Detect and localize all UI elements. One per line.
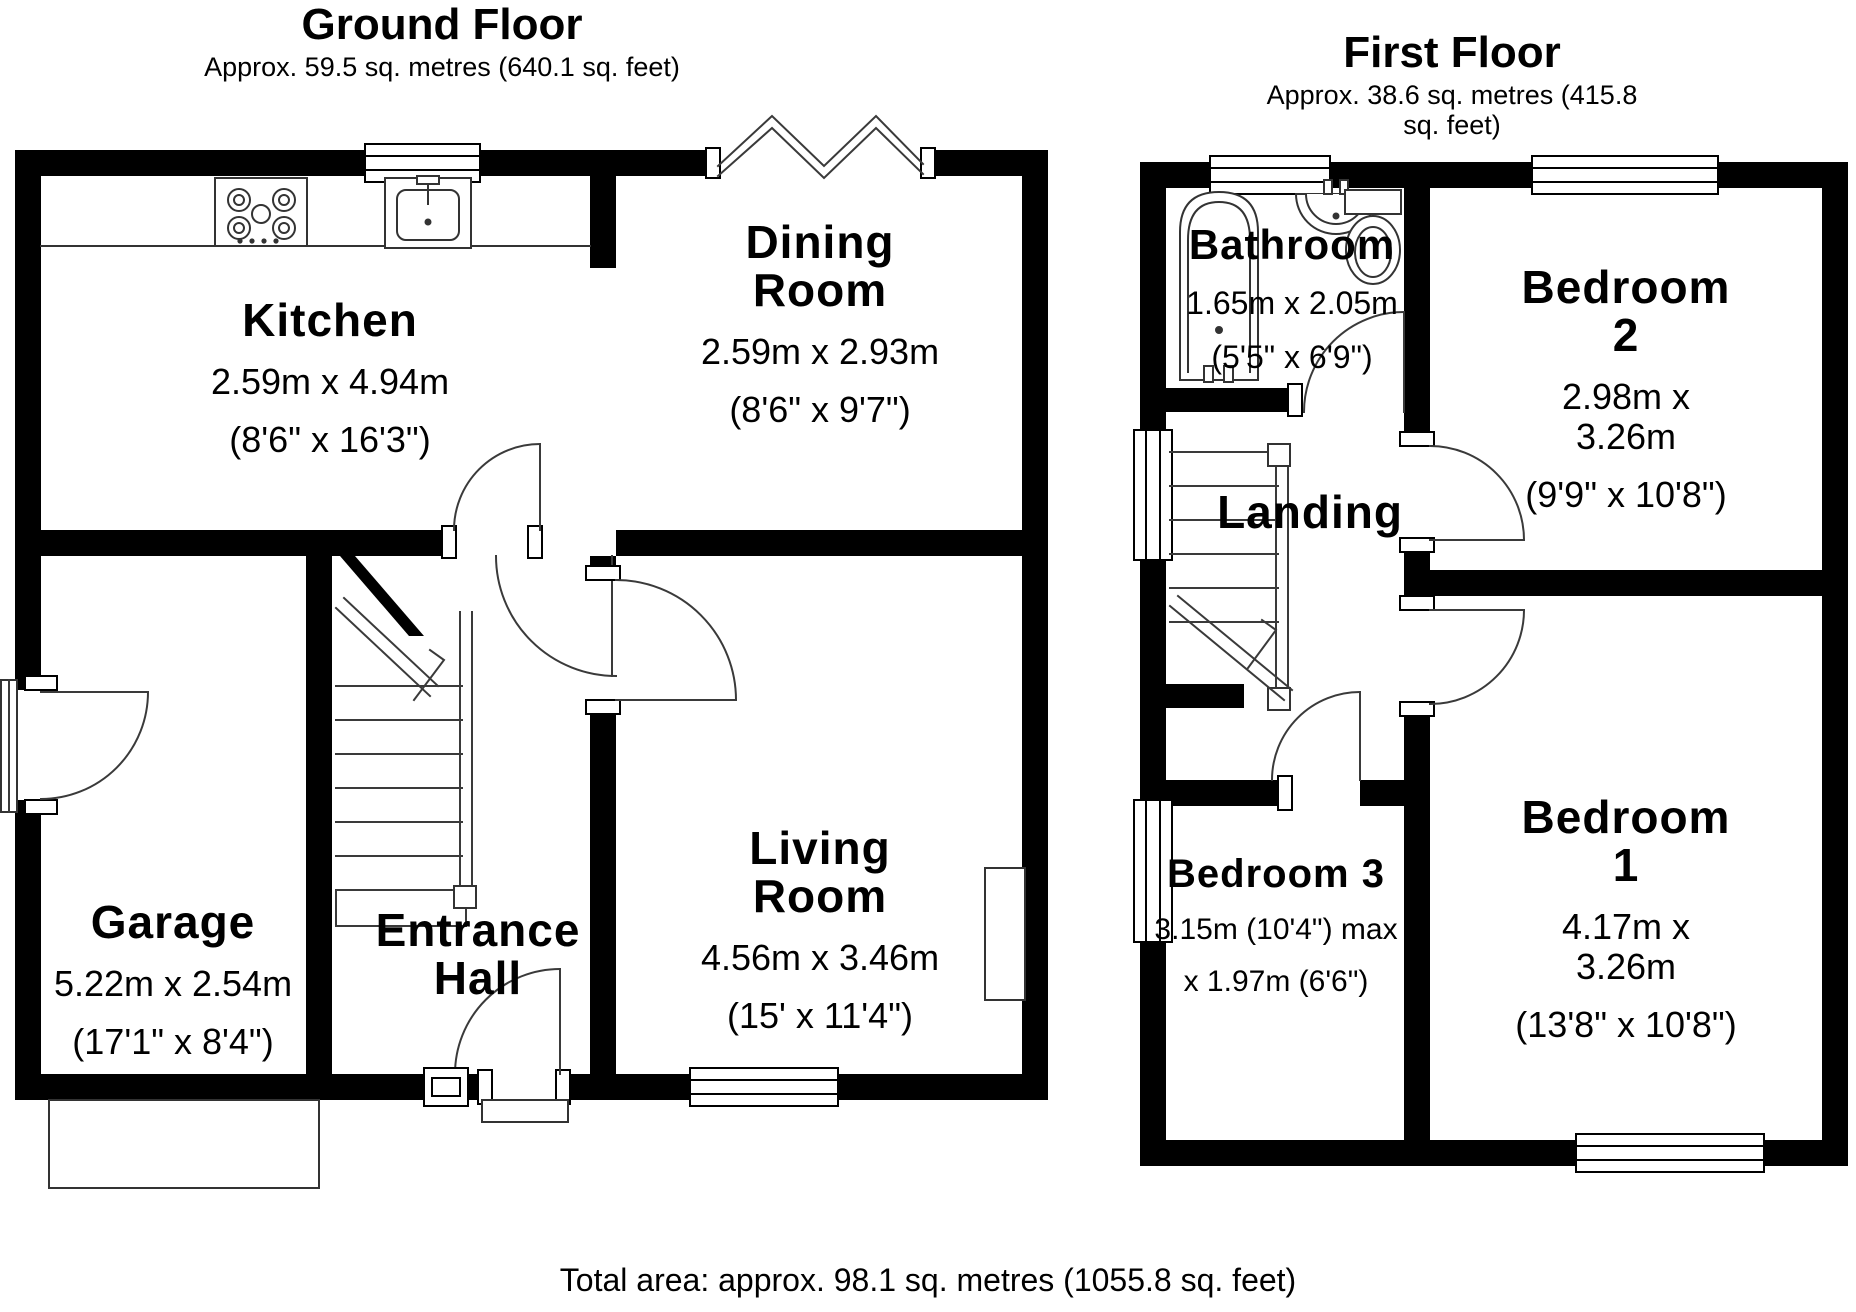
living-room-name: Living Room	[701, 824, 939, 920]
bedroom3-label: Bedroom 3 3.15m (10'4") max x 1.97m (6'6…	[1154, 835, 1397, 1017]
garage-name: Garage	[54, 898, 292, 946]
dining-bay-window	[706, 116, 935, 178]
chimney-breast	[985, 868, 1025, 1000]
kitchen-sink-icon	[385, 176, 471, 248]
garage-side-door	[1, 676, 148, 814]
bedroom2-door	[1400, 432, 1524, 552]
bedroom2-name: Bedroom 2	[1511, 263, 1741, 359]
bedroom2-dim-metric: 2.98m x 3.26m	[1511, 377, 1741, 457]
bathroom-dim-metric: 1.65m x 2.05m	[1186, 285, 1398, 321]
bedroom3-dim-imperial: x 1.97m (6'6")	[1154, 965, 1397, 999]
entrance-hall-label: Entrance Hall	[376, 888, 581, 1020]
bathroom-name: Bathroom	[1186, 223, 1398, 267]
bathroom-window	[1210, 156, 1330, 194]
floorplan-drawing	[0, 0, 1856, 1312]
bedroom2-dim-imperial: (9'9" x 10'8")	[1511, 475, 1741, 515]
living-room-window	[690, 1068, 838, 1106]
kitchen-dim-metric: 2.59m x 4.94m	[211, 362, 449, 402]
kitchen-door	[442, 444, 542, 558]
bedroom2-label: Bedroom 2 2.98m x 3.26m (9'9" x 10'8")	[1511, 245, 1741, 533]
bedroom1-label: Bedroom 1 4.17m x 3.26m (13'8" x 10'8")	[1511, 775, 1741, 1063]
bedroom2-window	[1532, 156, 1718, 194]
landing-label: Landing	[1217, 470, 1403, 554]
total-area-text: Total area: approx. 98.1 sq. metres (105…	[560, 1262, 1296, 1298]
bedroom1-door	[1400, 596, 1524, 716]
living-dim-imperial: (15' x 11'4")	[701, 996, 939, 1036]
living-dim-metric: 4.56m x 3.46m	[701, 938, 939, 978]
ground-floor-stairs	[336, 598, 476, 926]
ground-floor-title: Ground Floor	[301, 2, 582, 48]
landing-window	[1134, 430, 1172, 560]
bathroom-label: Bathroom 1.65m x 2.05m (5'5" x 6'9")	[1186, 205, 1398, 393]
bedroom1-dim-imperial: (13'8" x 10'8")	[1511, 1005, 1741, 1045]
garage-door	[49, 1100, 319, 1188]
garage-dim-metric: 5.22m x 2.54m	[54, 964, 292, 1004]
dining-room-label: Dining Room 2.59m x 2.93m (8'6" x 9'7")	[701, 200, 939, 448]
hall-window	[424, 1068, 468, 1106]
ground-floor-subtitle: Approx. 59.5 sq. metres (640.1 sq. feet)	[204, 52, 680, 82]
garage-label: Garage 5.22m x 2.54m (17'1" x 8'4")	[54, 880, 292, 1080]
bedroom1-dim-metric: 4.17m x 3.26m	[1511, 907, 1741, 987]
bedroom3-name: Bedroom 3	[1154, 853, 1397, 895]
dining-dim-metric: 2.59m x 2.93m	[701, 332, 939, 372]
living-room-label: Living Room 4.56m x 3.46m (15' x 11'4")	[701, 806, 939, 1054]
first-floor-subtitle: Approx. 38.6 sq. metres (415.8 sq. feet)	[1250, 80, 1654, 140]
living-room-door	[586, 566, 736, 714]
kitchen-name: Kitchen	[211, 296, 449, 344]
first-floor-title: First Floor	[1343, 30, 1561, 76]
bedroom3-dim-metric: 3.15m (10'4") max	[1154, 913, 1397, 947]
floorplan-page: Ground Floor Approx. 59.5 sq. metres (64…	[0, 0, 1856, 1312]
kitchen-label: Kitchen 2.59m x 4.94m (8'6" x 16'3")	[211, 278, 449, 478]
stove-icon	[215, 178, 307, 246]
landing-name: Landing	[1217, 488, 1403, 536]
bathroom-dim-imperial: (5'5" x 6'9")	[1186, 339, 1398, 375]
kitchen-dim-imperial: (8'6" x 16'3")	[211, 420, 449, 460]
dining-room-name: Dining Room	[701, 218, 939, 314]
bedroom1-name: Bedroom 1	[1511, 793, 1741, 889]
entrance-hall-name: Entrance Hall	[376, 906, 581, 1002]
bedroom1-window	[1576, 1134, 1764, 1172]
garage-dim-imperial: (17'1" x 8'4")	[54, 1022, 292, 1062]
dining-dim-imperial: (8'6" x 9'7")	[701, 390, 939, 430]
